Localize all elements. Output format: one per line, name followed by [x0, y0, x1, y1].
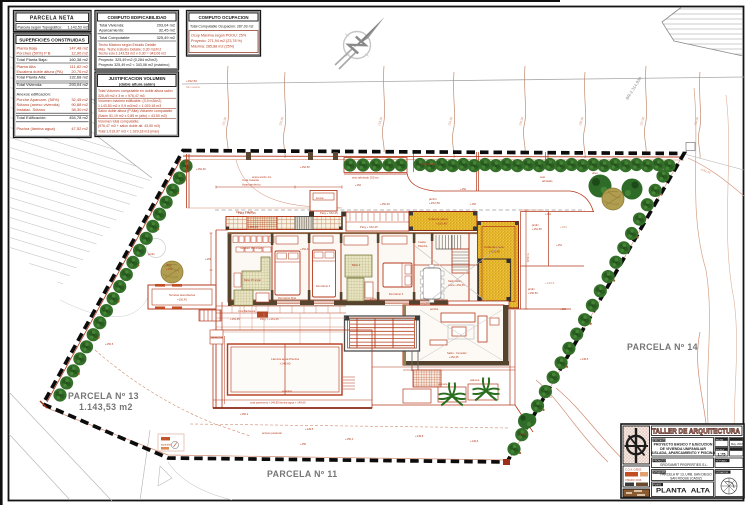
svg-text:altura +152,45: altura +152,45	[448, 283, 465, 287]
svg-text:Máxima: 285,88 m2 (2: Máxima: 285,88 m2 (25%)	[191, 45, 234, 49]
svg-text:TALLER DE ARQUITECTURA: TALLER DE ARQUITECTURA	[652, 427, 740, 436]
svg-text:+150,5: +150,5	[105, 342, 114, 346]
svg-text:Pérg + 152,45: Pérg + 152,45	[360, 225, 378, 229]
svg-text:Baño Principal: Baño Principal	[244, 278, 261, 282]
svg-text:acceso peatonal: acceso peatonal	[262, 431, 282, 435]
svg-text:Lámina agua Piscina: Lámina agua Piscina	[271, 357, 299, 361]
svg-text:palmera: palmera	[470, 378, 480, 382]
svg-text:(Salón 51,19 m2 x 0,85 m (alto: (Salón 51,19 m2 x 0,85 m (alto) = 43,50 …	[98, 114, 167, 118]
svg-text:+150,50: +150,50	[528, 291, 538, 295]
svg-text:+155,45: +155,45	[436, 222, 447, 226]
svg-text:Aparcamiento:: Aparcamiento:	[99, 28, 124, 33]
svg-text:+149,5: +149,5	[305, 427, 314, 431]
svg-text:+152: +152	[355, 183, 362, 187]
svg-text:+149,6: +149,6	[470, 439, 479, 443]
svg-text:PARCELA Nº 11: PARCELA Nº 11	[267, 469, 338, 479]
svg-text:cota pavimento +149,85 lá: cota pavimento +149,85 lámina agua + 149…	[250, 401, 306, 405]
svg-text:Porches (50%) P B: Porches (50%) P B	[17, 51, 51, 56]
svg-text:Total Planta Baja:: Total Planta Baja:	[17, 57, 48, 62]
svg-text:47,52 m2: 47,52 m2	[71, 126, 88, 131]
svg-text:SITUACION: SITUACION	[716, 471, 728, 474]
svg-text:seto: seto	[540, 175, 546, 179]
svg-text:palmera: palmera	[438, 382, 448, 386]
svg-text:Dormitorio 2: Dormitorio 2	[316, 284, 331, 288]
svg-text:+151: +151	[556, 243, 563, 247]
svg-text:jardín: jardín	[527, 287, 535, 291]
svg-text:+152: +152	[370, 297, 377, 301]
svg-text:Salón - Comedor: Salón - Comedor	[447, 351, 467, 355]
svg-text:arbolado: arbolado	[542, 179, 553, 183]
svg-text:seto arbolado: seto arbolado	[420, 162, 437, 166]
svg-text:+152,45: +152,45	[380, 202, 390, 206]
svg-text:May. 2016: May. 2016	[731, 442, 743, 446]
svg-text:Cuarto: Cuarto	[418, 240, 426, 244]
svg-text:Vestidor Principal: Vestidor Principal	[240, 246, 262, 250]
svg-text:Volumen total computable:: Volumen total computable:	[98, 119, 139, 123]
svg-text:Volumen máximo edificable:: Volumen máximo edificable: (0,9 m3/m2)	[98, 99, 161, 103]
svg-text:+150: +150	[300, 442, 307, 446]
svg-text:160,38 m2: 160,38 m2	[69, 57, 89, 62]
svg-text:C.O.A. CÁDIZ: C.O.A. CÁDIZ	[625, 468, 642, 472]
svg-text:acera ancho 1m: acera ancho 1m	[252, 175, 272, 179]
svg-text:luceta: luceta	[316, 196, 324, 200]
svg-text:1:75: 1:75	[717, 451, 726, 456]
svg-text:32,45 m2: 32,45 m2	[159, 28, 175, 33]
svg-text:VISADO 2016: VISADO 2016	[625, 478, 642, 482]
svg-text:+152,45: +152,45	[300, 247, 310, 251]
svg-text:+152,50: +152,50	[186, 79, 197, 83]
svg-text:Cubierta plana: Cubierta plana	[428, 217, 448, 221]
svg-text:Aparcamiento: Aparcamiento	[242, 183, 261, 187]
svg-text:12,90 m2: 12,90 m2	[71, 51, 88, 56]
svg-text:Terrazas descubiertas: Terrazas descubiertas	[169, 293, 196, 297]
svg-text:38,30 m2: 38,30 m2	[71, 107, 88, 112]
svg-text:Ocup Máxima según POOU: 25%: Ocup Máxima según POOU: 25%	[191, 34, 247, 38]
svg-text:Plancha: Plancha	[418, 244, 428, 248]
svg-text:+152,50: +152,50	[429, 201, 440, 205]
svg-text:SUPERFICIES CONSTRUIDAS: SUPERFICIES CONSTRUIDAS	[19, 38, 85, 43]
svg-text:COMPUTO OCUPACION: COMPUTO OCUPACION	[198, 15, 248, 20]
svg-text:(976,47 m3 + salón doble alt.: (976,47 m3 + salón doble alt. 43,50 m3)	[98, 124, 160, 128]
svg-text:1.143,53 m2: 1.143,53 m2	[67, 26, 88, 30]
svg-text:Total Computable:: Total Computable:	[99, 35, 130, 40]
svg-text:Piscina (lámina agua): Piscina (lámina agua)	[17, 126, 56, 131]
svg-text:Dormitorio Ppal: Dormitorio Ppal	[278, 296, 296, 300]
svg-text:Techo edu 1.143,53 m2 x 0,30 =: Techo edu 1.143,53 m2 x 0,30 = 343,06 m2	[99, 52, 167, 56]
svg-text:seto arbolado 100 cm: seto arbolado 100 cm	[352, 176, 380, 180]
svg-text:GROSVARIT PROPERTIES S.L.: GROSVARIT PROPERTIES S.L.	[660, 463, 708, 467]
svg-text:Proyecto 325,49 m2 < 343,06: Proyecto 325,49 m2 < 343,06 m2 (máximo)	[99, 63, 170, 67]
svg-text:PARCELA Nº 14: PARCELA Nº 14	[627, 342, 698, 352]
svg-text:JUSTIFICACION VOLUMEN: JUSTIFICACION VOLUMEN	[109, 76, 166, 81]
svg-text:Pérg. t. +151,45: Pérg. t. +151,45	[260, 317, 279, 321]
svg-text:Anexos edificación:: Anexos edificación:	[17, 92, 51, 97]
svg-text:PLANTA ALTA: PLANTA ALTA	[656, 487, 710, 494]
svg-text:jardín: jardín	[147, 252, 155, 256]
svg-text:Total Volumen computable en do: Total Volumen computable en doble altura…	[98, 89, 173, 93]
svg-text:(doble altura salón): (doble altura salón)	[119, 81, 156, 86]
svg-text:+149,8: +149,8	[415, 434, 424, 438]
svg-text:1.143,53 m2: 1.143,53 m2	[79, 402, 133, 412]
svg-text:Parcela según Topográfico:: Parcela según Topográfico:	[18, 26, 63, 30]
svg-text:Cine Barbacoa: Cine Barbacoa	[238, 309, 256, 313]
svg-text:Proyecto: 271,94 m2 (23,78 %): Proyecto: 271,94 m2 (23,78 %)	[191, 39, 242, 43]
svg-text:PARCELA Nº 13: PARCELA Nº 13	[68, 391, 139, 401]
svg-text:FECHA: FECHA	[716, 438, 723, 441]
svg-text:Total Computable Ocupación:: Total Computable Ocupación: 287,03 m2	[190, 25, 253, 29]
svg-text:+151: +151	[205, 257, 212, 261]
svg-text:SAN ROQUE (CADIZ): SAN ROQUE (CADIZ)	[670, 476, 702, 480]
svg-text:20,76 m2: 20,76 m2	[71, 69, 88, 74]
svg-text:AISLADA, APARCAMIENTO Y PISCIN: AISLADA, APARCAMIENTO Y PISCINA	[651, 451, 715, 455]
svg-text:acometida: acometida	[161, 444, 173, 447]
svg-text:Proyecto: 325,49 m2 (0,284 m2: Proyecto: 325,49 m2 (0,284 m2/m2)	[99, 58, 158, 62]
svg-text:+150: +150	[560, 307, 567, 311]
svg-text:Nº PLANO: Nº PLANO	[716, 460, 727, 463]
svg-text:solarium: solarium	[282, 389, 293, 393]
svg-text:Dormitorio 3: Dormitorio 3	[389, 292, 404, 296]
svg-text:+150,0: +150,0	[345, 437, 354, 441]
svg-text:+152,45: +152,45	[449, 355, 459, 359]
svg-text:Pérg + 152,45: Pérg + 152,45	[320, 211, 338, 215]
svg-text:+152,45: +152,45	[248, 225, 258, 229]
svg-text:+152,30: +152,30	[196, 167, 206, 171]
svg-text:+150: +150	[560, 225, 567, 229]
svg-text:+149,60: +149,60	[280, 362, 291, 366]
svg-text:+150,45: +150,45	[177, 298, 187, 302]
svg-text:Baño 2: Baño 2	[352, 263, 361, 267]
svg-text:+151,50: +151,50	[532, 227, 542, 231]
svg-text:jardín: jardín	[531, 223, 539, 227]
svg-text:1.143,53 m2 x 0,9 m3/m2 = 1.02: 1.143,53 m2 x 0,9 m3/m2 = 1.029,18 m3	[98, 104, 161, 108]
svg-text:+151,45: +151,45	[230, 317, 240, 321]
svg-text:PLANO: PLANO	[653, 484, 661, 487]
svg-text:PARCELA NETA: PARCELA NETA	[30, 16, 74, 22]
svg-text:Total 1.019,97 m3 < 1.02: Total 1.019,97 m3 < 1.029,18 m3 (máx)	[98, 130, 159, 134]
svg-text:Escalera doble altura (PA): Escalera doble altura (PA)	[17, 69, 64, 74]
svg-text:+151: +151	[166, 267, 173, 271]
svg-text:132,68 m2: 132,68 m2	[69, 75, 89, 80]
svg-text:Pérg + 152,45: Pérg + 152,45	[238, 211, 256, 215]
svg-text:Cubierta plana: Cubierta plana	[484, 245, 504, 249]
svg-text:Total Planta Alta:: Total Planta Alta:	[17, 75, 47, 80]
svg-text:Salón doble altura (P Alta) V: Salón doble altura (P Alta) Volumen comp…	[98, 109, 172, 113]
svg-text:+150,2: +150,2	[240, 412, 249, 416]
svg-text:325,49 m2: 325,49 m2	[157, 35, 175, 40]
svg-text:+152: +152	[460, 187, 467, 191]
svg-text:Instalac. Sótano: Instalac. Sótano	[17, 107, 46, 112]
svg-text:+149: +149	[520, 432, 526, 436]
svg-text:San rasante: San rasante	[186, 85, 201, 89]
svg-text:+152,50: +152,50	[300, 165, 310, 169]
svg-text:325,49 m2 x 3 m =: 325,49 m2 x 3 m = 976,47 m3	[98, 94, 145, 98]
svg-text:8,50 m: 8,50 m	[526, 253, 530, 262]
svg-text:+151: +151	[545, 212, 552, 216]
svg-text:+152: +152	[470, 202, 477, 206]
svg-text:COMPUTO EDIFICABILIDAD: COMPUTO EDIFICABILIDAD	[108, 15, 167, 20]
svg-text:olivo: olivo	[592, 171, 598, 175]
svg-text:+149,5: +149,5	[545, 281, 555, 285]
svg-text:porche: porche	[430, 307, 439, 311]
svg-text:+149,5: +149,5	[580, 357, 589, 361]
